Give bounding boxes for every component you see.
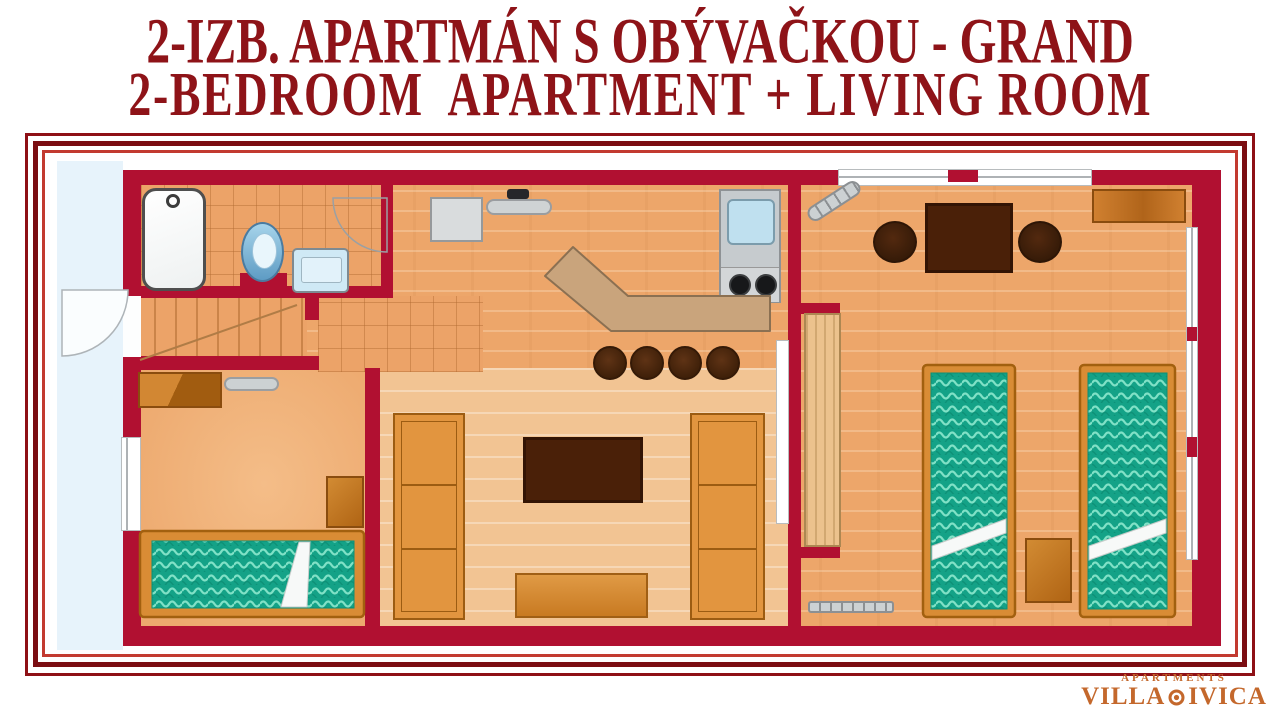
wall-stub-lower	[795, 547, 840, 558]
wardrobe-panel	[698, 421, 757, 612]
sideboard-icon	[1092, 189, 1186, 223]
wardrobe-panel	[401, 421, 457, 612]
flower-icon	[1168, 689, 1185, 706]
window-right-mullion-2	[1187, 437, 1197, 457]
brand-logo: APARTMENTS VILLA IVICA	[1078, 672, 1270, 710]
coffee-table-icon	[515, 573, 648, 618]
wall-bedroom-left-divider	[365, 368, 380, 626]
logo-villa-text: VILLA	[1081, 684, 1165, 710]
wardrobe-icon	[393, 413, 465, 620]
fridge-icon	[430, 197, 483, 242]
wall-bottom	[123, 626, 1221, 646]
dining-table-icon	[925, 203, 1013, 273]
entrance-door-gap	[123, 296, 141, 357]
stove-burner-icon	[729, 274, 751, 296]
tall-cabinet-icon	[804, 313, 841, 547]
radiator-icon	[808, 601, 894, 613]
chair-icon	[1018, 221, 1062, 263]
wall-hall-bottom	[123, 356, 319, 370]
wardrobe-icon	[690, 413, 765, 620]
tv-table-icon	[523, 437, 643, 503]
toilet-icon	[241, 222, 284, 282]
wall-left	[123, 170, 141, 646]
window-icon-left	[121, 437, 141, 531]
logo-villa-ivica: VILLA IVICA	[1078, 684, 1270, 710]
bar-stool-icon	[630, 346, 664, 380]
washbasin-bowl	[301, 257, 342, 283]
bar-stool-icon	[706, 346, 740, 380]
floor-plan	[0, 0, 1280, 720]
cooker-hood-icon	[486, 199, 552, 215]
cooker-hood-knob	[507, 189, 529, 199]
bar-stool-icon	[668, 346, 702, 380]
wall-bedroom-right-divider	[788, 185, 801, 626]
wall-hall-jamb	[305, 298, 319, 320]
bar-stool-icon	[593, 346, 627, 380]
kitchen-sink-icon	[727, 199, 775, 245]
chair-icon	[873, 221, 917, 263]
page: 2-IZB. APARTMÁN S OBÝVAČKOU - GRAND 2-BE…	[0, 0, 1280, 720]
window-right-mullion-1	[1187, 327, 1197, 341]
nightstand-icon	[1025, 538, 1072, 603]
wall-bathroom-right	[381, 185, 393, 298]
logo-ivica-text: IVICA	[1188, 684, 1267, 710]
corridor-tiled-floor	[318, 296, 483, 372]
washbasin-icon	[292, 248, 349, 293]
stove-burner-icon	[755, 274, 777, 296]
dresser-icon	[138, 372, 222, 408]
window-top-mullion	[948, 170, 978, 182]
wall-shelf-icon	[224, 377, 279, 391]
outside-terrace-area	[57, 161, 123, 650]
nightstand-icon	[326, 476, 364, 528]
stove-icon	[721, 267, 779, 302]
toilet-bowl	[252, 233, 277, 269]
kitchen-unit-icon	[719, 189, 781, 303]
window-icon-right	[1186, 227, 1198, 560]
door-leaf-icon	[776, 340, 789, 524]
bathtub-drain-icon	[166, 194, 180, 208]
